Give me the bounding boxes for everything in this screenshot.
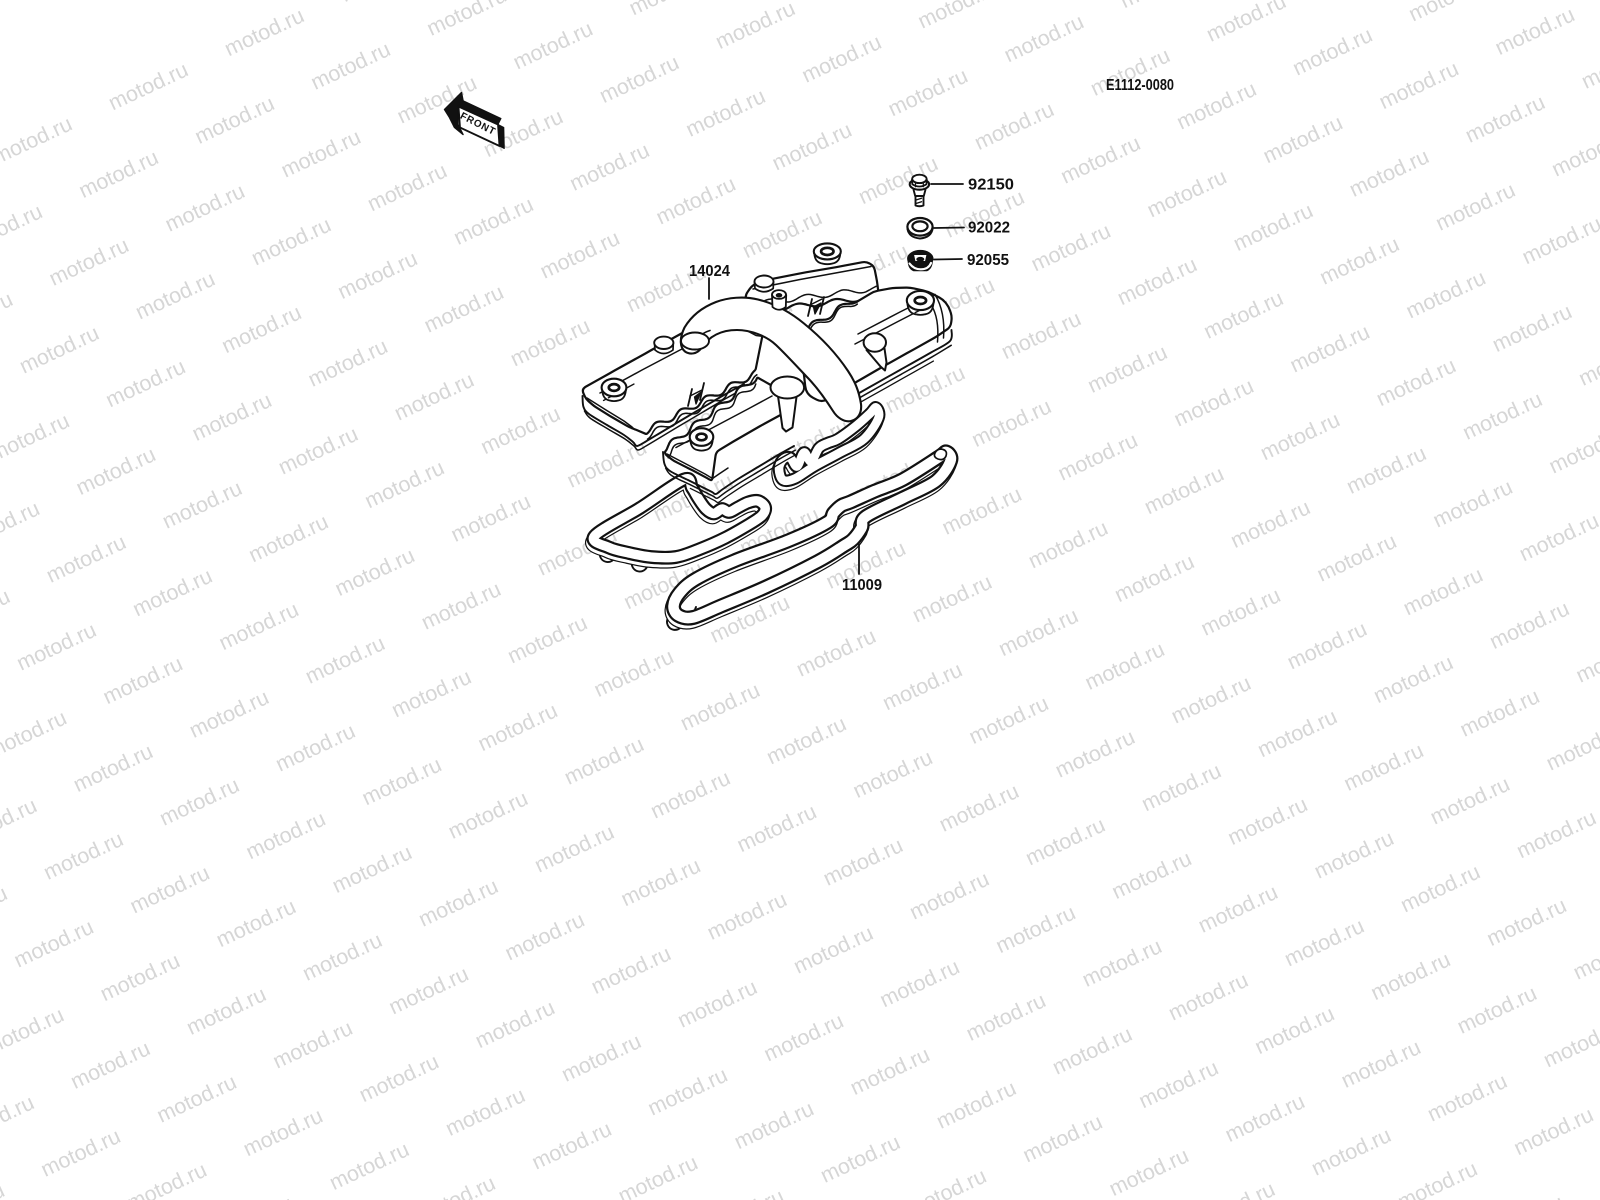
svg-text:motod.ru: motod.ru [1569,927,1600,985]
svg-text:motod.ru: motod.ru [0,881,11,939]
svg-text:motod.ru: motod.ru [507,314,594,372]
svg-text:92055: 92055 [967,252,1009,269]
svg-text:motod.ru: motod.ru [1143,165,1230,223]
svg-text:motod.ru: motod.ru [0,112,76,170]
svg-text:motod.ru: motod.ru [423,0,510,41]
svg-text:motod.ru: motod.ru [1203,0,1290,47]
svg-text:motod.ru: motod.ru [391,368,478,426]
svg-text:motod.ru: motod.ru [992,900,1079,958]
svg-text:motod.ru: motod.ru [504,611,591,669]
svg-text:motod.ru: motod.ru [1424,1069,1511,1127]
svg-text:motod.ru: motod.ru [1596,1136,1600,1194]
svg-text:motod.ru: motod.ru [528,1117,615,1175]
svg-text:motod.ru: motod.ru [876,955,963,1013]
svg-text:motod.ru: motod.ru [0,409,73,467]
svg-text:motod.ru: motod.ru [730,1096,817,1154]
svg-text:14024: 14024 [689,263,730,280]
svg-text:motod.ru: motod.ru [1540,1015,1600,1073]
svg-text:motod.ru: motod.ru [701,1184,788,1200]
svg-text:motod.ru: motod.ru [1313,529,1400,587]
svg-text:motod.ru: motod.ru [617,854,704,912]
svg-text:motod.ru: motod.ru [445,786,532,844]
svg-text:motod.ru: motod.ru [906,867,993,925]
svg-text:motod.ru: motod.ru [733,799,820,857]
svg-text:motod.ru: motod.ru [763,712,850,770]
svg-text:motod.ru: motod.ru [72,442,159,500]
svg-text:motod.ru: motod.ru [1000,9,1087,67]
svg-text:motod.ru: motod.ru [1054,428,1141,486]
svg-text:motod.ru: motod.ru [0,199,46,257]
svg-text:motod.ru: motod.ru [447,489,534,547]
svg-text:motod.ru: motod.ru [1135,1056,1222,1114]
svg-text:motod.ru: motod.ru [703,887,790,945]
svg-text:motod.ru: motod.ru [1027,219,1114,277]
svg-text:motod.ru: motod.ru [1286,320,1373,378]
svg-text:motod.ru: motod.ru [364,159,451,217]
svg-text:motod.ru: motod.ru [819,833,906,891]
svg-text:motod.ru: motod.ru [304,334,391,392]
svg-text:motod.ru: motod.ru [302,631,389,689]
svg-text:motod.ru: motod.ru [501,908,588,966]
svg-text:motod.ru: motod.ru [0,496,43,554]
svg-text:motod.ru: motod.ru [242,807,329,865]
svg-text:motod.ru: motod.ru [188,388,275,446]
svg-text:motod.ru: motod.ru [1394,1157,1481,1200]
svg-text:motod.ru: motod.ru [45,233,132,291]
svg-text:motod.ru: motod.ru [299,928,386,986]
svg-text:motod.ru: motod.ru [1432,178,1519,236]
svg-text:motod.ru: motod.ru [1022,813,1109,871]
svg-text:motod.ru: motod.ru [0,1090,38,1148]
svg-text:motod.ru: motod.ru [1141,462,1228,520]
svg-text:motod.ru: motod.ru [1510,1102,1597,1160]
svg-text:motod.ru: motod.ru [903,1164,990,1200]
svg-text:motod.ru: motod.ru [798,30,885,88]
svg-text:motod.ru: motod.ru [1542,718,1600,776]
svg-text:motod.ru: motod.ru [965,691,1052,749]
svg-text:motod.ru: motod.ru [1316,232,1403,290]
svg-text:motod.ru: motod.ru [652,172,739,230]
svg-text:motod.ru: motod.ru [1545,421,1600,479]
svg-text:motod.ru: motod.ru [1310,826,1397,884]
svg-text:motod.ru: motod.ru [846,1042,933,1100]
svg-text:motod.ru: motod.ru [248,213,335,271]
svg-text:motod.ru: motod.ru [1491,2,1578,60]
svg-text:motod.ru: motod.ru [1397,860,1484,918]
svg-text:motod.ru: motod.ru [420,280,507,338]
svg-text:motod.ru: motod.ru [269,1016,356,1074]
svg-text:motod.ru: motod.ru [1346,144,1433,202]
svg-text:motod.ru: motod.ru [739,205,826,263]
svg-text:motod.ru: motod.ru [509,17,596,75]
svg-text:motod.ru: motod.ru [105,57,192,115]
svg-text:motod.ru: motod.ru [1429,475,1516,533]
svg-text:motod.ru: motod.ru [1165,968,1252,1026]
svg-text:motod.ru: motod.ru [933,1076,1020,1134]
svg-text:motod.ru: motod.ru [561,732,648,790]
svg-text:motod.ru: motod.ru [1116,0,1203,13]
svg-text:motod.ru: motod.ru [590,644,677,702]
svg-text:motod.ru: motod.ru [882,361,969,419]
svg-text:motod.ru: motod.ru [337,0,424,7]
svg-text:motod.ru: motod.ru [998,306,1085,364]
svg-text:motod.ru: motod.ru [159,476,246,534]
svg-text:motod.ru: motod.ru [1200,286,1287,344]
svg-text:motod.ru: motod.ru [0,1003,68,1061]
svg-text:motod.ru: motod.ru [0,793,41,851]
svg-text:motod.ru: motod.ru [161,179,248,237]
svg-text:motod.ru: motod.ru [1575,333,1600,391]
svg-text:motod.ru: motod.ru [1049,1022,1136,1080]
svg-text:motod.ru: motod.ru [67,1036,154,1094]
svg-text:motod.ru: motod.ru [326,1137,413,1195]
svg-text:motod.ru: motod.ru [625,0,712,20]
svg-text:motod.ru: motod.ru [477,401,564,459]
svg-text:motod.ru: motod.ru [1518,212,1600,270]
svg-text:motod.ru: motod.ru [1251,1001,1338,1059]
svg-text:motod.ru: motod.ru [442,1083,529,1141]
svg-text:motod.ru: motod.ru [0,287,16,345]
svg-text:motod.ru: motod.ru [760,1009,847,1067]
svg-text:motod.ru: motod.ru [1489,299,1576,357]
svg-text:motod.ru: motod.ru [275,422,362,480]
svg-text:motod.ru: motod.ru [334,246,421,304]
svg-text:motod.ru: motod.ru [817,1130,904,1188]
svg-text:motod.ru: motod.ru [1486,596,1573,654]
svg-text:motod.ru: motod.ru [156,773,243,831]
svg-text:motod.ru: motod.ru [962,988,1049,1046]
svg-text:motod.ru: motod.ru [1459,387,1546,445]
svg-text:motod.ru: motod.ru [126,861,213,919]
svg-text:motod.ru: motod.ru [1221,1089,1308,1147]
svg-text:motod.ru: motod.ru [412,1171,499,1200]
svg-text:motod.ru: motod.ru [418,577,505,635]
svg-text:motod.ru: motod.ru [1340,738,1427,796]
svg-text:motod.ru: motod.ru [277,125,364,183]
svg-text:11009: 11009 [842,577,882,594]
svg-text:motod.ru: motod.ru [1168,671,1255,729]
svg-text:motod.ru: motod.ru [971,97,1058,155]
svg-text:motod.ru: motod.ru [1078,934,1165,992]
svg-text:motod.ru: motod.ru [215,597,302,655]
svg-text:motod.ru: motod.ru [536,226,623,284]
svg-text:motod.ru: motod.ru [1138,759,1225,817]
svg-text:motod.ru: motod.ru [329,840,416,898]
svg-text:motod.ru: motod.ru [43,530,130,588]
svg-text:motod.ru: motod.ru [968,394,1055,452]
svg-text:motod.ru: motod.ru [1081,637,1168,695]
svg-text:motod.ru: motod.ru [1224,792,1311,850]
svg-text:motod.ru: motod.ru [272,719,359,777]
svg-text:motod.ru: motod.ru [1370,650,1457,708]
svg-text:92150: 92150 [968,177,1014,194]
svg-text:motod.ru: motod.ru [849,745,936,803]
svg-text:motod.ru: motod.ru [936,779,1023,837]
svg-text:motod.ru: motod.ru [768,118,855,176]
svg-text:motod.ru: motod.ru [388,665,475,723]
svg-text:motod.ru: motod.ru [1367,947,1454,1005]
svg-text:motod.ru: motod.ru [1173,77,1260,135]
svg-text:motod.ru: motod.ru [1259,111,1346,169]
svg-text:motod.ru: motod.ru [1548,124,1600,182]
svg-text:motod.ru: motod.ru [0,584,14,642]
svg-text:E1112-0080: E1112-0080 [1106,77,1174,94]
svg-text:motod.ru: motod.ru [1192,1177,1279,1200]
svg-text:motod.ru: motod.ru [1483,893,1570,951]
svg-text:motod.ru: motod.ru [1194,880,1281,938]
svg-text:motod.ru: motod.ru [361,456,448,514]
svg-text:motod.ru: motod.ru [995,603,1082,661]
svg-text:motod.ru: motod.ru [1462,90,1549,148]
svg-text:motod.ru: motod.ru [855,151,942,209]
svg-text:motod.ru: motod.ru [123,1158,210,1200]
svg-text:motod.ru: motod.ru [614,1151,701,1200]
svg-text:motod.ru: motod.ru [10,915,97,973]
svg-text:motod.ru: motod.ru [0,1178,8,1200]
svg-text:motod.ru: motod.ru [1513,806,1600,864]
svg-text:motod.ru: motod.ru [1405,0,1492,26]
svg-text:motod.ru: motod.ru [1111,549,1198,607]
svg-text:motod.ru: motod.ru [1572,630,1600,688]
svg-text:motod.ru: motod.ru [1400,563,1487,621]
svg-text:motod.ru: motod.ru [37,1124,124,1182]
svg-text:motod.ru: motod.ru [1105,1143,1192,1200]
svg-text:motod.ru: motod.ru [1289,23,1376,81]
svg-text:motod.ru: motod.ru [1019,1110,1106,1168]
svg-text:motod.ru: motod.ru [647,766,734,824]
svg-text:motod.ru: motod.ru [183,982,270,1040]
svg-text:motod.ru: motod.ru [1254,704,1341,762]
svg-text:motod.ru: motod.ru [75,145,162,203]
svg-text:motod.ru: motod.ru [1337,1035,1424,1093]
svg-text:motod.ru: motod.ru [790,921,877,979]
svg-text:motod.ru: motod.ru [566,138,653,196]
svg-text:motod.ru: motod.ru [596,50,683,108]
svg-text:motod.ru: motod.ru [879,658,966,716]
svg-text:motod.ru: motod.ru [1426,772,1513,830]
svg-text:motod.ru: motod.ru [186,685,273,743]
svg-text:motod.ru: motod.ru [16,321,103,379]
svg-text:motod.ru: motod.ru [938,482,1025,540]
svg-text:motod.ru: motod.ru [239,1104,326,1162]
svg-text:motod.ru: motod.ru [677,678,764,736]
svg-text:motod.ru: motod.ru [1480,1190,1567,1200]
svg-text:motod.ru: motod.ru [1197,583,1284,641]
svg-text:motod.ru: motod.ru [558,1029,645,1087]
svg-text:motod.ru: motod.ru [1373,353,1460,411]
svg-text:motod.ru: motod.ru [474,698,561,756]
svg-text:motod.ru: motod.ru [1114,252,1201,310]
svg-text:motod.ru: motod.ru [102,354,189,412]
svg-text:motod.ru: motod.ru [331,543,418,601]
svg-text:motod.ru: motod.ru [1578,36,1600,94]
svg-text:motod.ru: motod.ru [1052,725,1139,783]
svg-text:motod.ru: motod.ru [132,267,219,325]
svg-text:motod.ru: motod.ru [70,739,157,797]
svg-text:motod.ru: motod.ru [682,84,769,142]
svg-text:motod.ru: motod.ru [355,1049,442,1107]
svg-text:motod.ru: motod.ru [884,64,971,122]
svg-text:motod.ru: motod.ru [531,820,618,878]
svg-text:motod.ru: motod.ru [1057,131,1144,189]
svg-text:motod.ru: motod.ru [245,510,332,568]
svg-text:motod.ru: motod.ru [471,995,558,1053]
svg-text:motod.ru: motod.ru [1453,981,1540,1039]
svg-text:motod.ru: motod.ru [909,570,996,628]
svg-text:motod.ru: motod.ru [914,0,1001,33]
svg-text:motod.ru: motod.ru [153,1070,240,1128]
svg-text:motod.ru: motod.ru [793,624,880,682]
svg-text:motod.ru: motod.ru [358,752,445,810]
svg-text:motod.ru: motod.ru [1257,408,1344,466]
svg-text:motod.ru: motod.ru [210,1191,297,1200]
svg-text:motod.ru: motod.ru [385,962,472,1020]
svg-text:motod.ru: motod.ru [1456,684,1543,742]
svg-text:motod.ru: motod.ru [1108,846,1195,904]
svg-text:motod.ru: motod.ru [97,948,184,1006]
svg-text:motod.ru: motod.ru [307,37,394,95]
svg-text:motod.ru: motod.ru [0,706,70,764]
svg-text:motod.ru: motod.ru [1170,374,1257,432]
svg-text:92022: 92022 [968,220,1010,237]
svg-text:motod.ru: motod.ru [1516,509,1600,567]
svg-text:motod.ru: motod.ru [40,827,127,885]
svg-text:motod.ru: motod.ru [1230,198,1317,256]
svg-text:motod.ru: motod.ru [218,300,305,358]
svg-text:motod.ru: motod.ru [99,651,186,709]
svg-text:motod.ru: motod.ru [712,0,799,54]
svg-text:motod.ru: motod.ru [213,894,300,952]
svg-text:motod.ru: motod.ru [1375,56,1462,114]
svg-text:motod.ru: motod.ru [1084,340,1171,398]
svg-text:motod.ru: motod.ru [1402,266,1489,324]
svg-text:motod.ru: motod.ru [415,874,502,932]
svg-text:motod.ru: motod.ru [1284,617,1371,675]
svg-text:motod.ru: motod.ru [13,618,100,676]
svg-text:motod.ru: motod.ru [1343,441,1430,499]
svg-text:motod.ru: motod.ru [1281,914,1368,972]
svg-text:motod.ru: motod.ru [129,564,216,622]
svg-text:motod.ru: motod.ru [450,192,537,250]
svg-text:motod.ru: motod.ru [587,941,674,999]
svg-text:motod.ru: motod.ru [1227,495,1314,553]
svg-text:motod.ru: motod.ru [221,3,308,61]
svg-text:motod.ru: motod.ru [563,435,650,493]
svg-text:motod.ru: motod.ru [1308,1123,1395,1181]
svg-text:motod.ru: motod.ru [191,91,278,149]
svg-text:motod.ru: motod.ru [1025,516,1112,574]
svg-text:motod.ru: motod.ru [674,975,761,1033]
svg-text:motod.ru: motod.ru [644,1063,731,1121]
